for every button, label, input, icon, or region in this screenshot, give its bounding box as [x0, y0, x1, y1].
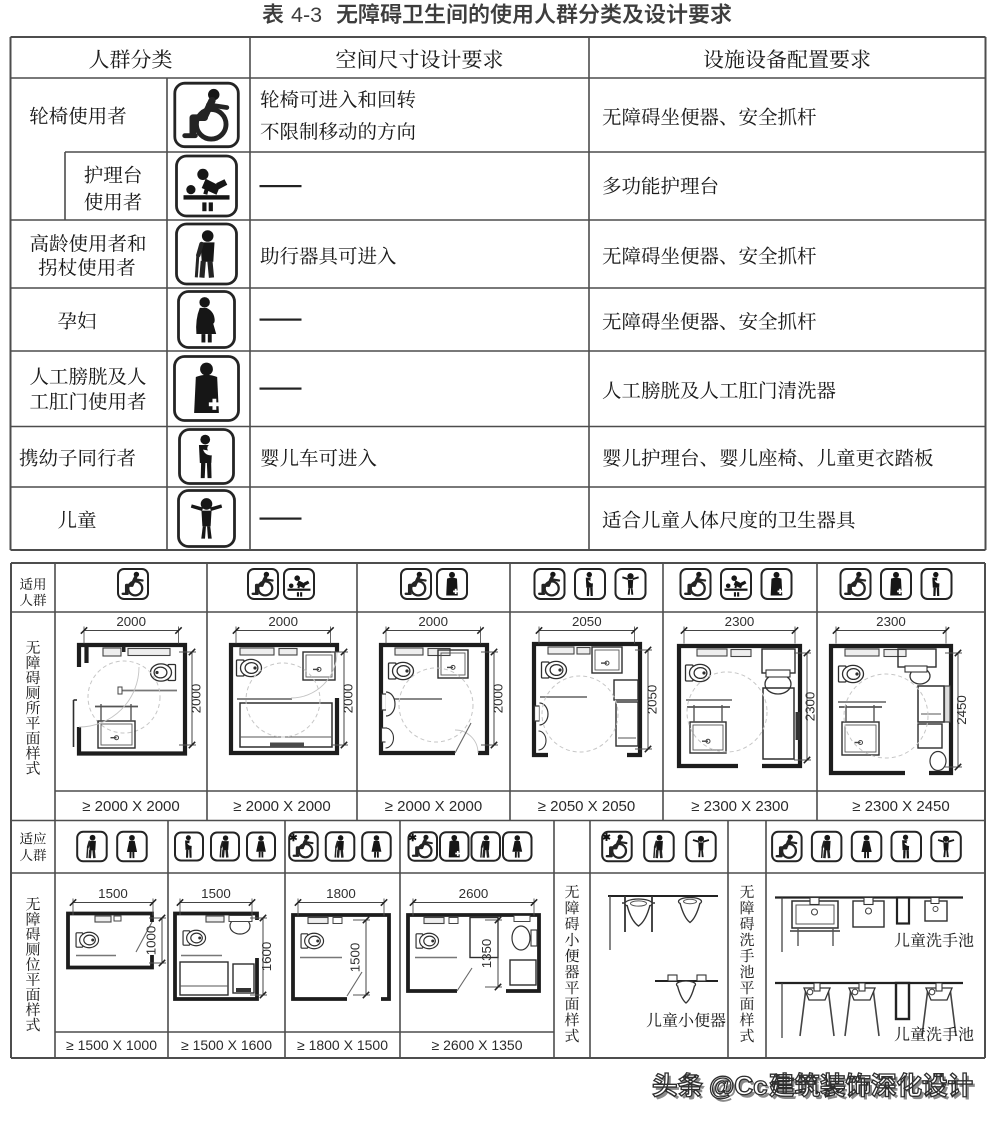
svg-text:≥ 2300 X 2300: ≥ 2300 X 2300: [691, 798, 788, 815]
svg-text:2050: 2050: [572, 614, 602, 629]
svg-text:1500: 1500: [348, 943, 363, 973]
svg-text:2450: 2450: [954, 695, 969, 725]
svg-text:2000: 2000: [268, 614, 298, 629]
svg-text:≥ 2000 X 2000: ≥ 2000 X 2000: [233, 798, 330, 815]
svg-text:2300: 2300: [876, 614, 906, 629]
svg-text:2000: 2000: [341, 684, 356, 714]
svg-text:@Cc: @Cc: [709, 1071, 768, 1101]
svg-text:2000: 2000: [116, 614, 146, 629]
svg-text:1800: 1800: [326, 886, 356, 901]
svg-text:≥ 2300 X 2450: ≥ 2300 X 2450: [852, 798, 949, 815]
svg-text:2050: 2050: [645, 685, 660, 715]
svg-text:4-3: 4-3: [291, 3, 322, 27]
svg-text:≥ 1500 X 1000: ≥ 1500 X 1000: [66, 1037, 157, 1053]
svg-text:2300: 2300: [725, 614, 755, 629]
svg-text:2000: 2000: [418, 614, 448, 629]
svg-text:≥ 2600 X 1350: ≥ 2600 X 1350: [432, 1037, 523, 1053]
svg-text:2000: 2000: [491, 684, 506, 714]
svg-text:≥ 2000 X 2000: ≥ 2000 X 2000: [82, 798, 179, 815]
svg-text:2300: 2300: [803, 692, 818, 722]
svg-text:≥ 2050 X 2050: ≥ 2050 X 2050: [538, 798, 635, 815]
svg-text:≥ 2000 X 2000: ≥ 2000 X 2000: [385, 798, 482, 815]
svg-text:1600: 1600: [259, 942, 274, 972]
svg-text:1000: 1000: [144, 926, 159, 956]
svg-text:1500: 1500: [201, 886, 231, 901]
svg-text:1500: 1500: [98, 886, 128, 901]
svg-text:2600: 2600: [459, 886, 489, 901]
svg-text:≥ 1800 X 1500: ≥ 1800 X 1500: [297, 1037, 388, 1053]
svg-text:≥ 1500 X 1600: ≥ 1500 X 1600: [181, 1037, 272, 1053]
svg-text:2000: 2000: [189, 684, 204, 714]
svg-text:1350: 1350: [479, 939, 494, 969]
